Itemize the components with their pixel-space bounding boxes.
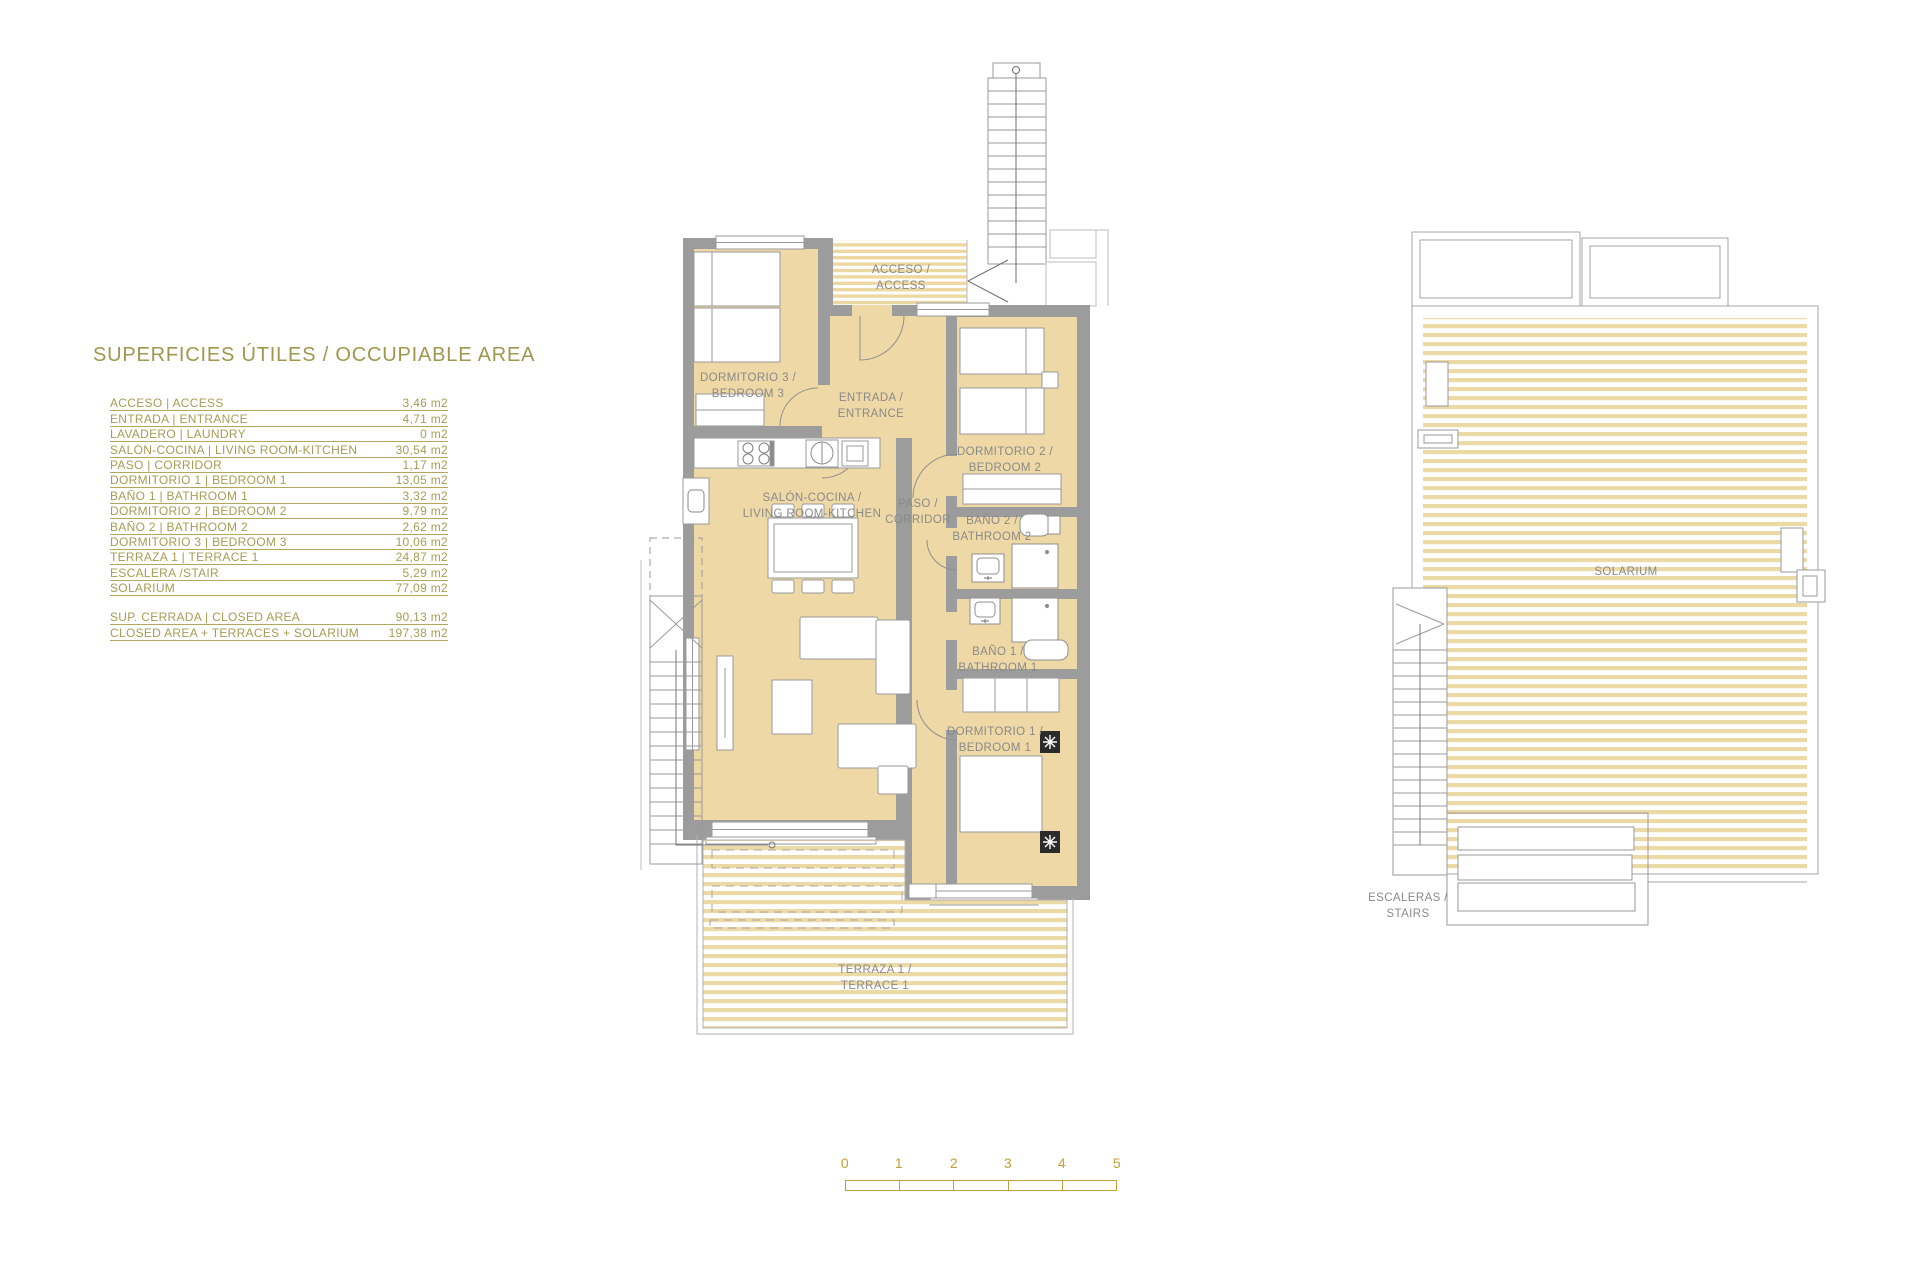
table-row: ACCESO | ACCESS3,46 m2 (110, 396, 448, 411)
scale-bar (845, 1180, 1117, 1191)
page-title: SUPERFICIES ÚTILES / OCCUPIABLE AREA (93, 344, 535, 367)
table-summary-row: SUP. CERRADA | CLOSED AREA90,13 m2 (110, 610, 448, 625)
label-dormitorio1: DORMITORIO 1 /BEDROOM 1 (947, 724, 1043, 756)
scale-tick-2: 2 (950, 1155, 958, 1171)
table-row: DORMITORIO 1 | BEDROOM 113,05 m2 (110, 473, 448, 488)
label-dormitorio2: DORMITORIO 2 /BEDROOM 2 (957, 444, 1053, 476)
table-row: ESCALERA /STAIR5,29 m2 (110, 565, 448, 580)
solarium-stair (1393, 588, 1447, 875)
scale-bar-cell (1009, 1181, 1063, 1190)
table-row: ENTRADA | ENTRANCE4,71 m2 (110, 411, 448, 426)
scale-tick-5: 5 (1113, 1155, 1121, 1171)
scale-bar-cell (1063, 1181, 1116, 1190)
table-row: TERRAZA 1 | TERRACE 124,87 m2 (110, 550, 448, 565)
scale-tick-4: 4 (1058, 1155, 1066, 1171)
top-exterior-stair (968, 63, 1046, 302)
label-acceso: ACCESO /ACCESS (872, 262, 930, 294)
solarium-bench (1447, 813, 1648, 925)
scale-tick-0: 0 (841, 1155, 849, 1171)
table-row: BAÑO 1 | BATHROOM 13,32 m2 (110, 488, 448, 503)
scale-bar-cell (900, 1181, 954, 1190)
table-row: DORMITORIO 3 | BEDROOM 310,06 m2 (110, 535, 448, 550)
label-solarium: SOLARIUM (1594, 564, 1657, 580)
scale-bar-cell (846, 1181, 900, 1190)
area-table: ACCESO | ACCESS3,46 m2 ENTRADA | ENTRANC… (110, 396, 448, 641)
bedside-lamp-icon (1040, 831, 1060, 853)
scale-tick-3: 3 (1004, 1155, 1012, 1171)
label-bano2: BAÑO 2 /BATHROOM 2 (952, 513, 1031, 545)
table-row: PASO | CORRIDOR1,17 m2 (110, 458, 448, 473)
label-salon-cocina: SALÓN-COCINA /LIVING ROOM-KITCHEN (743, 490, 882, 522)
table-gap (110, 596, 448, 610)
neighbour-access-outline (1046, 230, 1108, 306)
table-row: BAÑO 2 | BATHROOM 22,62 m2 (110, 519, 448, 534)
label-terraza: TERRAZA 1 /TERRACE 1 (838, 962, 911, 994)
scale-bar-cell (954, 1181, 1008, 1190)
table-row: DORMITORIO 2 | BEDROOM 29,79 m2 (110, 504, 448, 519)
table-row: LAVADERO | LAUNDRY0 m2 (110, 427, 448, 442)
table-row: SALÓN-COCINA | LIVING ROOM-KITCHEN30,54 … (110, 442, 448, 457)
label-entrada: ENTRADA /ENTRANCE (838, 390, 904, 422)
scale-tick-1: 1 (895, 1155, 903, 1171)
label-escaleras: ESCALERAS /STAIRS (1368, 890, 1448, 922)
floor-plan-sheet: SUPERFICIES ÚTILES / OCCUPIABLE AREA ACC… (0, 0, 1920, 1280)
label-bano1: BAÑO 1 /BATHROOM 1 (958, 644, 1037, 676)
table-row: SOLARIUM77,09 m2 (110, 581, 448, 596)
solarium-plan (1412, 232, 1818, 882)
label-paso: PASO /CORRIDOR (885, 496, 951, 528)
label-dormitorio3: DORMITORIO 3 /BEDROOM 3 (700, 370, 796, 402)
table-summary-row: CLOSED AREA + TERRACES + SOLARIUM197,38 … (110, 625, 448, 640)
